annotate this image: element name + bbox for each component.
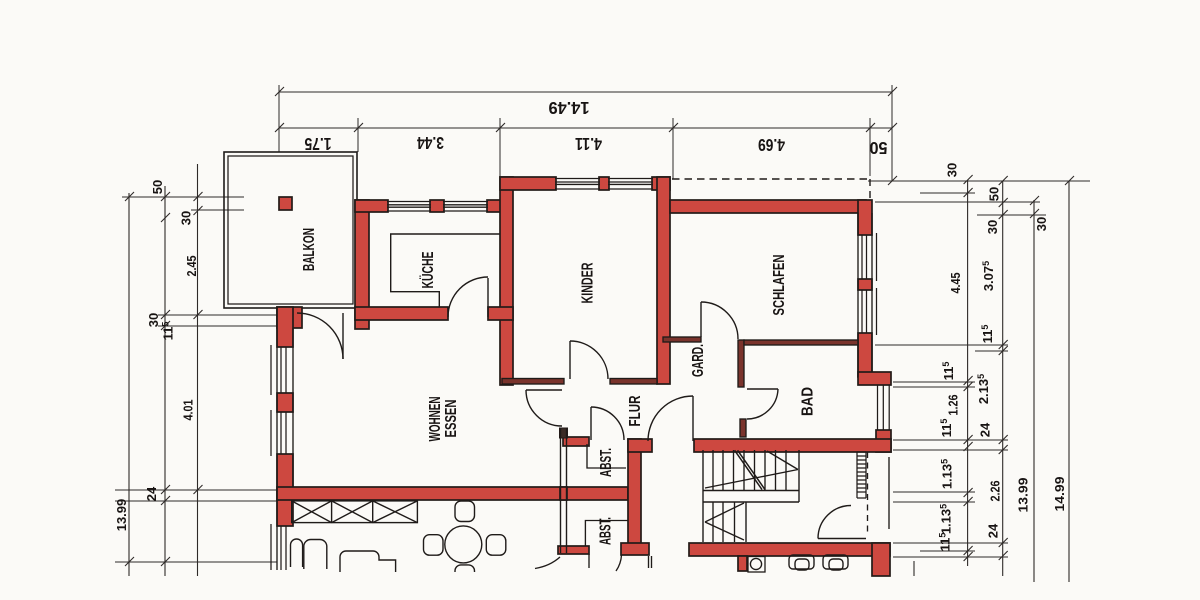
svg-text:4.01: 4.01 bbox=[181, 400, 196, 421]
svg-text:3.44: 3.44 bbox=[417, 133, 444, 153]
svg-text:50: 50 bbox=[150, 180, 165, 194]
svg-text:13.99: 13.99 bbox=[114, 499, 129, 532]
svg-text:14.49: 14.49 bbox=[548, 98, 589, 118]
svg-text:24: 24 bbox=[144, 486, 159, 501]
svg-text:BAD: BAD bbox=[800, 387, 817, 416]
svg-text:30: 30 bbox=[1034, 217, 1049, 231]
svg-text:1.75: 1.75 bbox=[304, 134, 331, 154]
svg-text:4.69: 4.69 bbox=[758, 135, 785, 155]
svg-text:30: 30 bbox=[945, 163, 960, 177]
svg-text:2.45: 2.45 bbox=[184, 256, 199, 277]
svg-text:14.99: 14.99 bbox=[1052, 477, 1067, 512]
svg-text:KÜCHE: KÜCHE bbox=[420, 252, 437, 289]
svg-text:WOHNEN: WOHNEN bbox=[427, 397, 444, 442]
svg-text:4.11: 4.11 bbox=[575, 134, 602, 154]
svg-text:ABST.: ABST. bbox=[598, 448, 615, 477]
svg-text:4.45: 4.45 bbox=[948, 273, 963, 294]
svg-text:50: 50 bbox=[987, 187, 1002, 201]
svg-text:13.99: 13.99 bbox=[1016, 478, 1031, 513]
svg-text:30: 30 bbox=[146, 313, 161, 327]
svg-text:KINDER: KINDER bbox=[580, 263, 597, 304]
svg-text:24: 24 bbox=[978, 422, 993, 437]
svg-text:ABST.: ABST. bbox=[598, 517, 615, 545]
svg-text:2.26: 2.26 bbox=[988, 481, 1003, 502]
svg-text:FLUR: FLUR bbox=[627, 396, 644, 427]
svg-text:BALKON: BALKON bbox=[301, 228, 318, 271]
svg-text:SCHLAFEN: SCHLAFEN bbox=[771, 255, 788, 316]
svg-text:GARD.: GARD. bbox=[690, 344, 707, 377]
svg-text:24: 24 bbox=[986, 523, 1001, 538]
svg-text:30: 30 bbox=[985, 220, 1000, 234]
svg-text:30: 30 bbox=[179, 211, 194, 225]
svg-text:1.26: 1.26 bbox=[946, 395, 961, 416]
svg-text:50: 50 bbox=[869, 138, 887, 158]
svg-text:ESSEN: ESSEN bbox=[443, 400, 460, 438]
